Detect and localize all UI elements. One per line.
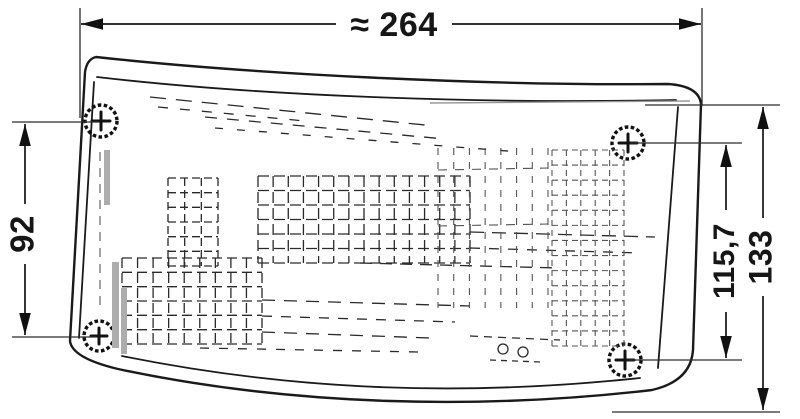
screw-bottom-left xyxy=(84,321,114,351)
lamp-inner-rim-top xyxy=(97,77,676,101)
lens-grid-right xyxy=(552,150,624,346)
dim-right-inner: 115,7 xyxy=(627,143,742,360)
technical-drawing: ≈ 264 92 115,7 133 xyxy=(0,0,800,419)
dim-left-height-label: 92 xyxy=(4,215,41,253)
lens-grid-lower-left xyxy=(122,258,262,344)
drawing-canvas: ≈ 264 92 115,7 133 xyxy=(0,0,800,419)
screw-top-left xyxy=(85,105,117,137)
lens-grid-lower-rows xyxy=(200,300,470,352)
lens-shading-left xyxy=(100,150,127,354)
lamp-outline xyxy=(70,57,701,402)
lens-marks-bottom-center xyxy=(470,336,560,362)
dim-width-label: ≈ 264 xyxy=(350,6,437,44)
lamp-inner-rim-right xyxy=(658,107,678,368)
dim-right-inner-label: 115,7 xyxy=(708,223,741,299)
lens-hatch-top-left xyxy=(150,97,520,152)
lamp-rim-shadow-top xyxy=(430,101,690,103)
lens-grid-mini-left xyxy=(168,178,218,266)
dim-right-outer-label: 133 xyxy=(742,230,778,285)
